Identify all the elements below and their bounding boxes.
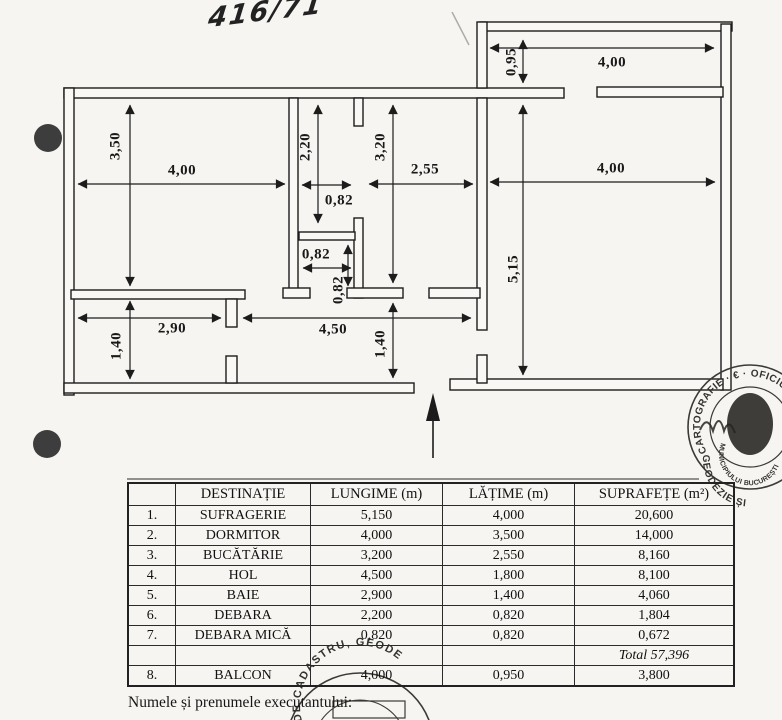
cell-suprafata: 4,060: [575, 586, 735, 606]
table-row: 1. SUFRAGERIE 5,150 4,000 20,600: [128, 506, 734, 526]
dim-label-balcony-width: 4,00: [598, 55, 626, 72]
header-suprafete: SUPRAFEȚE (m²): [575, 483, 735, 506]
pen-mark: [452, 12, 469, 45]
dim-label-closet-depth: 0,82: [331, 276, 348, 304]
dim-label-closet-width-mid: 0,82: [302, 247, 330, 264]
cell-lungime: 3,200: [311, 546, 443, 566]
cell-nr: 4.: [128, 566, 176, 586]
wall-seg-small: [283, 288, 310, 298]
table-header-row: DESTINAȚIE LUNGIME (m) LĂȚIME (m) SUPRAF…: [128, 483, 734, 506]
table-row: 7. DEBARA MICĂ 0,820 0,820 0,672: [128, 626, 734, 646]
cell-nr: 8.: [128, 666, 176, 687]
cell-nr: 3.: [128, 546, 176, 566]
cell-destinatie: HOL: [176, 566, 311, 586]
dim-label-hall-width-right: 4,50: [319, 322, 347, 339]
punch-hole-bottom: [33, 430, 61, 458]
cell-destinatie: [176, 646, 311, 666]
wall-right-outer: [721, 24, 731, 390]
cell-latime: 0,820: [443, 626, 575, 646]
cell-nr: [128, 646, 176, 666]
cell-lungime: 4,000: [311, 526, 443, 546]
wall-top-living: [597, 87, 723, 97]
dim-label-closet-width-top: 0,82: [325, 193, 353, 210]
cell-destinatie: SUFRAGERIE: [176, 506, 311, 526]
wall-seg-mid: [347, 288, 403, 298]
cell-latime: 1,400: [443, 586, 575, 606]
stamp-eagle-emblem: [727, 393, 773, 455]
cell-suprafata: 20,600: [575, 506, 735, 526]
wall-top-main: [64, 88, 564, 98]
closet-shelf: [299, 232, 355, 240]
cell-lungime: [311, 646, 443, 666]
cell-suprafata: 3,800: [575, 666, 735, 687]
cell-nr: 1.: [128, 506, 176, 526]
cell-latime: 3,500: [443, 526, 575, 546]
header-destinatie: DESTINAȚIE: [176, 483, 311, 506]
cell-latime: [443, 646, 575, 666]
table-row: 4. HOL 4,500 1,800 8,100: [128, 566, 734, 586]
wall-closet-mid: [354, 218, 363, 298]
cell-destinatie: BUCĂTĂRIE: [176, 546, 311, 566]
cell-latime: 0,820: [443, 606, 575, 626]
wall-balcony-left: [477, 22, 487, 88]
wall-left-outer: [64, 88, 74, 395]
cell-lungime: 0,820: [311, 626, 443, 646]
wall-hall-left: [71, 290, 245, 299]
wall-balcony-top: [480, 22, 732, 31]
cell-lungime: 4,000: [311, 666, 443, 687]
dim-label-closet-height: 2,20: [298, 133, 315, 161]
table-row: 8. BALCON 4,000 0,950 3,800: [128, 666, 734, 687]
cell-lungime: 4,500: [311, 566, 443, 586]
header-latime: LĂȚIME (m): [443, 483, 575, 506]
wall-stub-a: [226, 299, 237, 327]
dim-label-kitchen-width: 2,55: [411, 162, 439, 179]
cell-nr: 7.: [128, 626, 176, 646]
cell-destinatie: BAIE: [176, 586, 311, 606]
wall-closet-stub-top: [354, 98, 363, 126]
table-row: 6. DEBARA 2,200 0,820 1,804: [128, 606, 734, 626]
cell-latime: 0,950: [443, 666, 575, 687]
table-row: 5. BAIE 2,900 1,400 4,060: [128, 586, 734, 606]
cell-latime: 1,800: [443, 566, 575, 586]
dim-label-bedroom-height: 3,50: [108, 132, 125, 160]
dim-label-hall-height: 3,20: [373, 133, 390, 161]
cell-lungime: 2,900: [311, 586, 443, 606]
dim-label-balcony-depth: 0,95: [504, 48, 521, 76]
wall-living-left-stub: [477, 355, 487, 383]
cell-suprafata: 0,672: [575, 626, 735, 646]
wall-bedroom-right: [289, 98, 298, 291]
wall-seg-right: [429, 288, 480, 298]
dim-label-living-width: 4,00: [597, 161, 625, 178]
table-row-total: Total 57,396: [128, 646, 734, 666]
cell-suprafata: 14,000: [575, 526, 735, 546]
scanned-document-page: CARTOGRAFIE · € · OFICIUL GEODEZIE ȘI MU…: [0, 0, 782, 720]
wall-bottom-left: [64, 383, 414, 393]
cell-lungime: 5,150: [311, 506, 443, 526]
cell-destinatie: BALCON: [176, 666, 311, 687]
cell-latime: 2,550: [443, 546, 575, 566]
cell-lungime: 2,200: [311, 606, 443, 626]
cell-destinatie: DEBARA MICĂ: [176, 626, 311, 646]
cell-suprafata: 1,804: [575, 606, 735, 626]
punch-hole-top: [34, 124, 62, 152]
cell-destinatie: DEBARA: [176, 606, 311, 626]
dim-label-bedroom-width: 4,00: [168, 163, 196, 180]
area-table: DESTINAȚIE LUNGIME (m) LĂȚIME (m) SUPRAF…: [127, 482, 735, 687]
walls: [64, 22, 732, 395]
cell-total: Total 57,396: [575, 646, 735, 666]
cell-nr: 6.: [128, 606, 176, 626]
cell-nr: 2.: [128, 526, 176, 546]
table-row: 3. BUCĂTĂRIE 3,200 2,550 8,160: [128, 546, 734, 566]
cell-latime: 4,000: [443, 506, 575, 526]
header-nr: [128, 483, 176, 506]
wall-bottom-right: [450, 379, 723, 390]
wall-stub-b: [226, 356, 237, 383]
executor-label: Numele și prenumele executantului:: [128, 694, 352, 712]
header-lungime: LUNGIME (m): [311, 483, 443, 506]
cell-nr: 5.: [128, 586, 176, 606]
cell-suprafata: 8,100: [575, 566, 735, 586]
dim-label-strip-left: 1,40: [109, 332, 126, 360]
entrance-arrow-icon: [426, 393, 440, 458]
dim-label-hall-width-left: 2,90: [158, 321, 186, 338]
table-row: 2. DORMITOR 4,000 3,500 14,000: [128, 526, 734, 546]
cell-destinatie: DORMITOR: [176, 526, 311, 546]
cell-suprafata: 8,160: [575, 546, 735, 566]
dim-label-living-height: 5,15: [506, 255, 523, 283]
dim-label-strip-right: 1,40: [373, 330, 390, 358]
